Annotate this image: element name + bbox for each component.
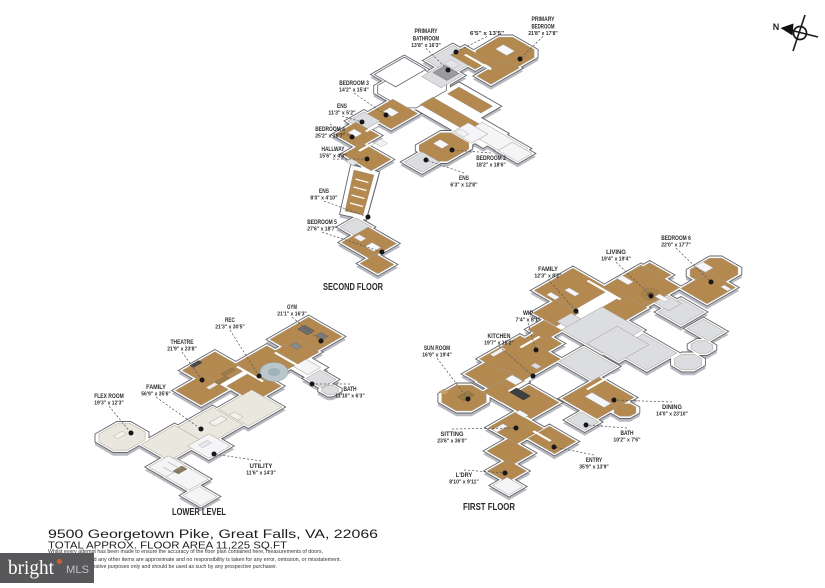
svg-text:ENS: ENS [319,188,329,195]
svg-text:19'7" x 16'2": 19'7" x 16'2" [484,341,514,347]
svg-text:27'6" x 18'7": 27'6" x 18'7" [307,227,337,233]
svg-text:BEDROOM: BEDROOM [532,23,555,30]
svg-text:KITCHEN: KITCHEN [488,333,511,340]
svg-text:23'6" x 36'0": 23'6" x 36'0" [437,439,467,445]
svg-text:L'DRY: L'DRY [456,472,473,479]
svg-text:56'9" x 35'6": 56'9" x 35'6" [141,392,171,398]
svg-text:14'2" x 15'4": 14'2" x 15'4" [339,88,369,94]
svg-text:14'0" x 23'10": 14'0" x 23'10" [656,412,688,418]
svg-text:22'0" x 17'7": 22'0" x 17'7" [661,243,691,249]
svg-text:MLS: MLS [66,564,89,576]
svg-text:8'10" x 9'11": 8'10" x 9'11" [449,480,479,486]
svg-text:7'4" x 8'1": 7'4" x 8'1" [516,318,541,324]
svg-text:FIRST FLOOR: FIRST FLOOR [463,502,516,513]
svg-text:19'4" x 19'4": 19'4" x 19'4" [601,257,631,263]
svg-text:ENS: ENS [459,175,469,182]
svg-text:bright: bright [8,557,54,579]
svg-text:12'3" x 8'2": 12'3" x 8'2" [534,274,562,280]
svg-text:BEDROOM 4: BEDROOM 4 [315,126,345,133]
svg-text:35'9" x 13'9": 35'9" x 13'9" [579,465,609,471]
svg-text:16'9" x 19'4": 16'9" x 19'4" [422,353,452,359]
svg-text:PRIMARY: PRIMARY [532,16,556,23]
svg-text:GYM: GYM [287,304,297,311]
svg-text:SUN ROOM: SUN ROOM [424,345,450,352]
svg-text:18'2" x 18'6": 18'2" x 18'6" [476,163,506,169]
svg-text:BEDROOM 3: BEDROOM 3 [339,80,369,87]
svg-text:HALLWAY: HALLWAY [322,146,346,153]
svg-text:8'0" x 4'10": 8'0" x 4'10" [310,196,338,202]
svg-text:FAMILY: FAMILY [538,266,558,273]
svg-text:ENS: ENS [337,103,347,110]
svg-text:11'10" x 6'3": 11'10" x 6'3" [335,394,365,400]
svg-text:BATHROOM: BATHROOM [413,35,439,42]
svg-text:FAMILY: FAMILY [146,384,166,391]
svg-text:21'3" x 30'5": 21'3" x 30'5" [215,325,245,331]
svg-text:6'3" x 12'8": 6'3" x 12'8" [450,183,478,189]
svg-text:LOWER LEVEL: LOWER LEVEL [172,507,226,518]
svg-text:15'6" x 4'8": 15'6" x 4'8" [319,154,347,160]
svg-text:25'2" x 16'7": 25'2" x 16'7" [315,134,345,140]
svg-text:21'8" x 17'8": 21'8" x 17'8" [528,31,558,37]
svg-text:THEATRE: THEATRE [171,339,194,346]
svg-text:11'3" x 5'2": 11'3" x 5'2" [328,111,356,117]
svg-text:FLEX ROOM: FLEX ROOM [94,393,124,400]
svg-text:6'5" x 13'5": 6'5" x 13'5" [470,31,505,37]
svg-text:BEDROOM 5: BEDROOM 5 [307,219,337,226]
svg-text:SITTING: SITTING [441,431,464,438]
svg-text:WIP: WIP [523,310,533,317]
svg-text:ENTRY: ENTRY [586,457,603,464]
svg-text:11'6" x 14'3": 11'6" x 14'3" [246,471,276,477]
svg-text:21'1" x 16'3": 21'1" x 16'3" [277,312,307,318]
svg-text:N: N [773,22,780,32]
svg-text:UTILITY: UTILITY [250,463,274,470]
svg-text:BATH: BATH [343,386,357,393]
svg-text:9500 Georgetown Pike, Great Fa: 9500 Georgetown Pike, Great Falls, VA, 2… [48,527,378,541]
svg-text:BEDROOM 2: BEDROOM 2 [476,155,506,162]
svg-text:13'8" x 16'3": 13'8" x 16'3" [411,43,441,49]
svg-text:BEDROOM 6: BEDROOM 6 [661,235,691,242]
svg-text:BATH: BATH [620,430,634,437]
svg-text:SECOND FLOOR: SECOND FLOOR [323,282,384,293]
svg-text:LIVING: LIVING [606,249,626,256]
svg-text:10'2" x 7'6": 10'2" x 7'6" [613,438,641,444]
svg-text:REC: REC [225,317,235,324]
svg-text:21'9" x 23'8": 21'9" x 23'8" [167,347,197,353]
svg-text:DINING: DINING [662,404,682,411]
svg-text:PRIMARY: PRIMARY [415,28,439,35]
svg-text:19'3" x 12'3": 19'3" x 12'3" [94,401,124,407]
